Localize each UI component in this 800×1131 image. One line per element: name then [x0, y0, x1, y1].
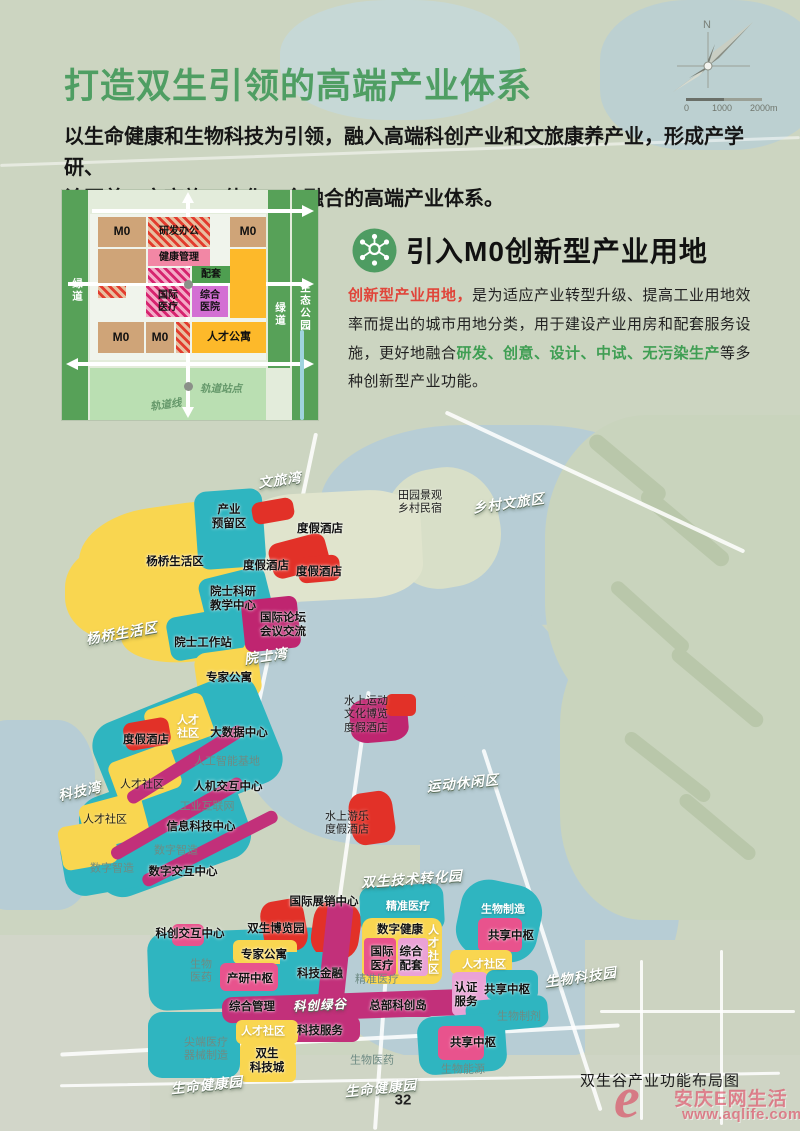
block-m0: M0: [98, 217, 146, 247]
north-letter: N: [703, 19, 711, 31]
zone-label: 水上游乐 度假酒店: [325, 811, 369, 838]
highlight-red-text: 创新型产业用地，: [348, 287, 472, 304]
river-line: [300, 330, 304, 420]
zone-label: 度假酒店: [123, 733, 169, 747]
node-dot: [184, 280, 193, 289]
site-watermark: e 安庆E网生活 www.aqlife.com: [612, 1078, 800, 1128]
land-shape: [0, 935, 150, 1131]
block-support: 配套: [192, 266, 230, 283]
zone-label: 杨桥生活区: [146, 555, 204, 569]
zone-label: 信息科技中心: [167, 820, 236, 834]
zone-label: 度假酒店: [297, 522, 343, 536]
zone-label: 共享中枢: [450, 1036, 496, 1050]
zone-blob: [386, 694, 416, 716]
zone-label: 综合 配套: [400, 945, 423, 973]
road-line: [600, 1010, 795, 1013]
zone-label: 科技金融: [297, 967, 343, 981]
zone-label: 双生 科技城: [250, 1047, 285, 1075]
block-intl-medical: 国际 医疗: [146, 286, 190, 317]
zone-label: 田园景观 乡村民宿: [398, 490, 442, 517]
zone-label: 生物制造: [481, 903, 525, 916]
zone-label: 科技服务: [297, 1024, 343, 1038]
zone-label: 生物医药: [350, 1054, 394, 1067]
zone-label: 工业互联网: [180, 800, 235, 813]
zone-label: 人才社区: [83, 813, 127, 826]
zone-label: 双生博览园: [247, 922, 305, 936]
watermark-logo: e: [614, 1064, 640, 1131]
scale-segment: [724, 98, 762, 101]
zone-label: 人才社区: [120, 778, 164, 791]
zone-label: 专家公寓: [206, 671, 252, 685]
highlight-green-text: 研发、创意、设计、中试、无污染生产: [457, 345, 721, 362]
scale-tick-label: 0: [684, 103, 689, 113]
greenway-label-right: 绿道: [273, 302, 288, 327]
zone-label: 院士科研 教学中心: [210, 585, 256, 613]
zone-label: 人才社区: [241, 1025, 285, 1038]
zone-label: 精准医疗: [386, 900, 430, 913]
corridor-label: 科创绿谷: [293, 997, 348, 1015]
zone-label: 生物能源: [441, 1063, 485, 1076]
zone-label: 度假酒店: [243, 559, 289, 573]
block-hatch: [176, 322, 190, 353]
eco-park-label: 生态公园: [298, 282, 313, 332]
zone-label: 产研中枢: [227, 972, 273, 986]
zone-label: 认证 服务: [455, 981, 478, 1009]
zone-label: 国际 医疗: [371, 945, 394, 973]
block-m0: M0: [98, 322, 144, 353]
bay-label: 文旅湾: [257, 470, 302, 492]
block-rd-office: 研发办公: [148, 217, 210, 247]
block-yellow: [230, 249, 266, 318]
molecule-icon: [352, 228, 397, 273]
zone-label: 度假酒店: [296, 565, 342, 579]
zone-label: 产业 预留区: [212, 503, 247, 531]
zone-label: 大数据中心: [210, 726, 268, 740]
greenway-label-left: 绿道: [70, 278, 85, 303]
zone-label: 生物 医药: [190, 959, 212, 986]
block-general-hospital: 综合 医院: [192, 286, 228, 317]
planning-poster-page: 打造双生引领的高端产业体系 以生命健康和生物科技为引领，融入高端科创产业和文旅康…: [0, 0, 800, 1131]
block-health-mgmt: 健康管理: [148, 249, 210, 266]
page-title: 打造双生引领的高端产业体系: [64, 58, 532, 109]
scale-tick-label: 2000m: [750, 103, 778, 113]
zone-label: 数字智造: [90, 862, 134, 875]
zone-label: 共享中枢: [488, 929, 534, 943]
block-talent-apartment: 人才公寓: [192, 322, 266, 353]
zone-label: 人才社区: [462, 958, 506, 971]
m0-landuse-diagram: M0 研发办公 M0 健康管理 配套 国际 医疗 综合 医院 M0 M0 人才公…: [62, 190, 318, 420]
zone-label: 科创交互中心: [156, 927, 225, 941]
rail-station-dot: [184, 382, 193, 391]
scale-segment: [686, 98, 724, 101]
watermark-url: www.aqlife.com: [682, 1106, 800, 1123]
scale-tick-label: 1000: [712, 103, 732, 113]
rail-station-label: 轨道站点: [200, 381, 242, 396]
zone-label: 数字交互中心: [149, 865, 218, 879]
zone-label: 水上运动 文化博览 度假酒店: [344, 695, 388, 735]
zone-label: 人机交互中心: [194, 780, 263, 794]
block-hatch: [98, 286, 126, 298]
zone-label: 院士工作站: [174, 636, 232, 650]
zone-label: 生物制剂: [497, 1010, 541, 1023]
zone-label: 国际论坛 会议交流: [260, 611, 306, 639]
block-m0: M0: [230, 217, 266, 247]
zone-label: 综合管理: [229, 1000, 275, 1014]
page-number: 32: [395, 1092, 412, 1109]
zone-label: 人工智能基地: [194, 755, 260, 768]
zone-label: 数字智造: [154, 844, 198, 857]
block-hatch: [148, 268, 190, 283]
zone-label: 专家公寓: [241, 948, 287, 962]
block-m0: M0: [146, 322, 174, 353]
zone-label: 人才社区: [427, 924, 438, 976]
zone-label: 尖端医疗 器械制造: [184, 1037, 228, 1064]
block-tan: [98, 249, 146, 283]
zone-label: 国际展销中心: [290, 895, 359, 909]
m0-section-heading: 引入M0创新型产业用地: [406, 230, 708, 270]
zone-label: 数字健康: [377, 923, 423, 937]
zone-label: 精准医疗: [355, 973, 399, 986]
compass-rose-icon: N: [655, 14, 770, 98]
zone-label: 总部科创岛: [369, 999, 427, 1013]
zone-label: 人才 社区: [177, 715, 199, 742]
m0-section-paragraph: 创新型产业用地，是为适应产业转型升级、提高工业用地效率而提出的城市用地分类，用于…: [348, 282, 760, 397]
zone-label: 共享中枢: [484, 983, 530, 997]
